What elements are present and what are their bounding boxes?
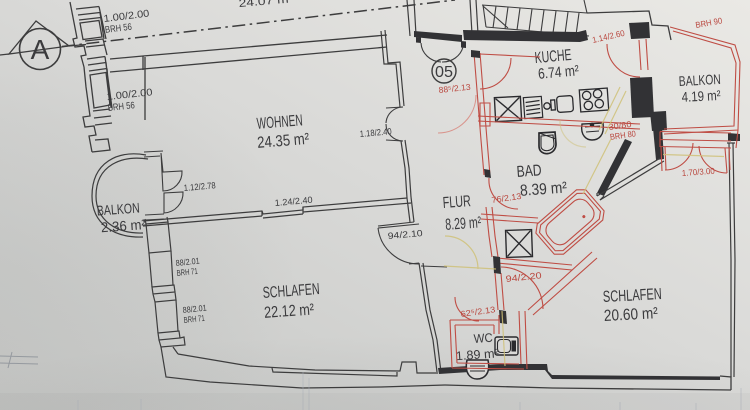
svg-text:WC: WC: [473, 331, 493, 346]
svg-text:22.12 m²: 22.12 m²: [264, 301, 316, 321]
svg-text:BAD: BAD: [516, 162, 542, 181]
svg-text:8.29 m²: 8.29 m²: [445, 214, 483, 234]
svg-text:05: 05: [435, 64, 453, 81]
svg-text:A: A: [31, 34, 50, 65]
svg-text:4.19 m²: 4.19 m²: [681, 87, 721, 105]
svg-text:FLUR: FLUR: [442, 193, 471, 212]
svg-text:1.89 m²: 1.89 m²: [455, 346, 499, 363]
svg-text:8.39 m²: 8.39 m²: [519, 180, 568, 200]
svg-text:BALKON: BALKON: [96, 199, 140, 218]
svg-text:20.60 m²: 20.60 m²: [603, 305, 658, 325]
svg-text:6.74 m²: 6.74 m²: [537, 62, 579, 83]
svg-text:WOHNEN: WOHNEN: [256, 112, 303, 133]
svg-text:SCHLAFEN: SCHLAFEN: [602, 286, 662, 306]
svg-text:2.36 m²: 2.36 m²: [100, 216, 146, 235]
